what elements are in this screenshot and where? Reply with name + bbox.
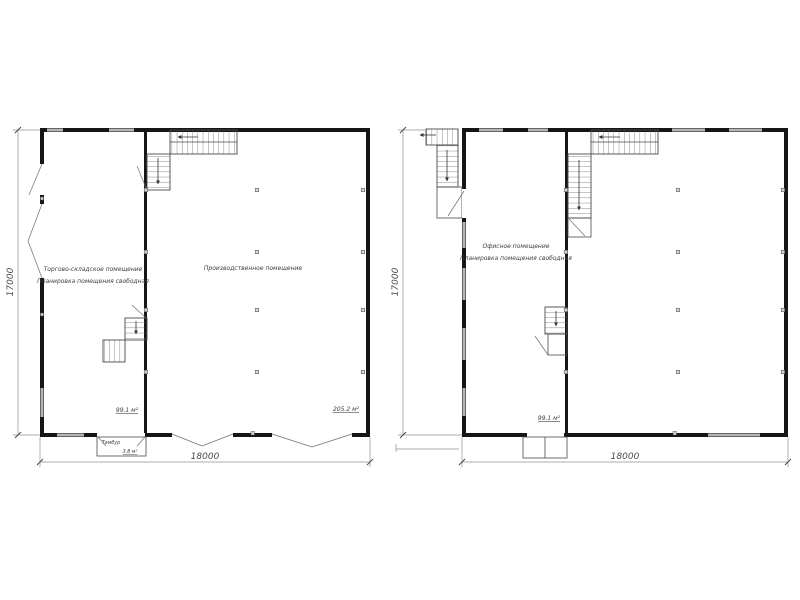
- room-label-office: Офисное помещение: [483, 243, 550, 250]
- vestibule-area-label: 3.8 м²: [123, 449, 138, 455]
- vestibule-label: Тамбур: [102, 440, 120, 446]
- dim-width-label-left: 18000: [191, 452, 220, 462]
- floor-plan-left: Тамбур 3.8 м² Торгово-складское помещени…: [6, 127, 373, 467]
- dimension-horizontal: 18000: [459, 437, 791, 467]
- floor-plans-drawing: Тамбур 3.8 м² Торгово-складское помещени…: [0, 0, 800, 600]
- stair-mid: [535, 307, 567, 355]
- outer-walls: [462, 128, 788, 437]
- room-sublabel-trade-warehouse: Планировка помещения свободная: [37, 278, 149, 285]
- ground-mark: [396, 444, 459, 452]
- stair-mid: [103, 305, 147, 362]
- room-sublabel-office: Планировка помещения свободная: [460, 255, 572, 262]
- area-label-trade-warehouse: 99.1 м²: [116, 407, 139, 414]
- stair-external: [420, 129, 466, 218]
- dimension-vertical: 17000: [6, 127, 40, 438]
- vestibule: Тамбур 3.8 м²: [97, 433, 146, 456]
- stair-top: [568, 130, 658, 237]
- room-label-production: Производственное помещение: [204, 265, 303, 272]
- stair-top: [137, 130, 237, 190]
- doors-left-wall: [28, 164, 44, 278]
- area-label-production: 205.2 м²: [333, 406, 360, 413]
- floor-plan-right: Офисное помещение Планировка помещения с…: [391, 127, 791, 467]
- room-labels: Торгово-складское помещение Планировка п…: [37, 265, 360, 414]
- dimension-horizontal: 18000: [37, 437, 373, 467]
- blueprint-canvas: Тамбур 3.8 м² Торгово-складское помещени…: [0, 0, 800, 600]
- dim-width-label-right: 18000: [611, 452, 640, 462]
- dim-height-label-right: 17000: [391, 267, 401, 296]
- column-grid: [564, 188, 785, 435]
- dim-height-label-left: 17000: [6, 267, 16, 296]
- vestibule: [523, 433, 567, 458]
- column-grid: [41, 188, 365, 435]
- room-label-trade-warehouse: Торгово-складское помещение: [44, 266, 143, 273]
- area-label-office: 99.1 м²: [538, 415, 561, 422]
- windows: [463, 129, 763, 437]
